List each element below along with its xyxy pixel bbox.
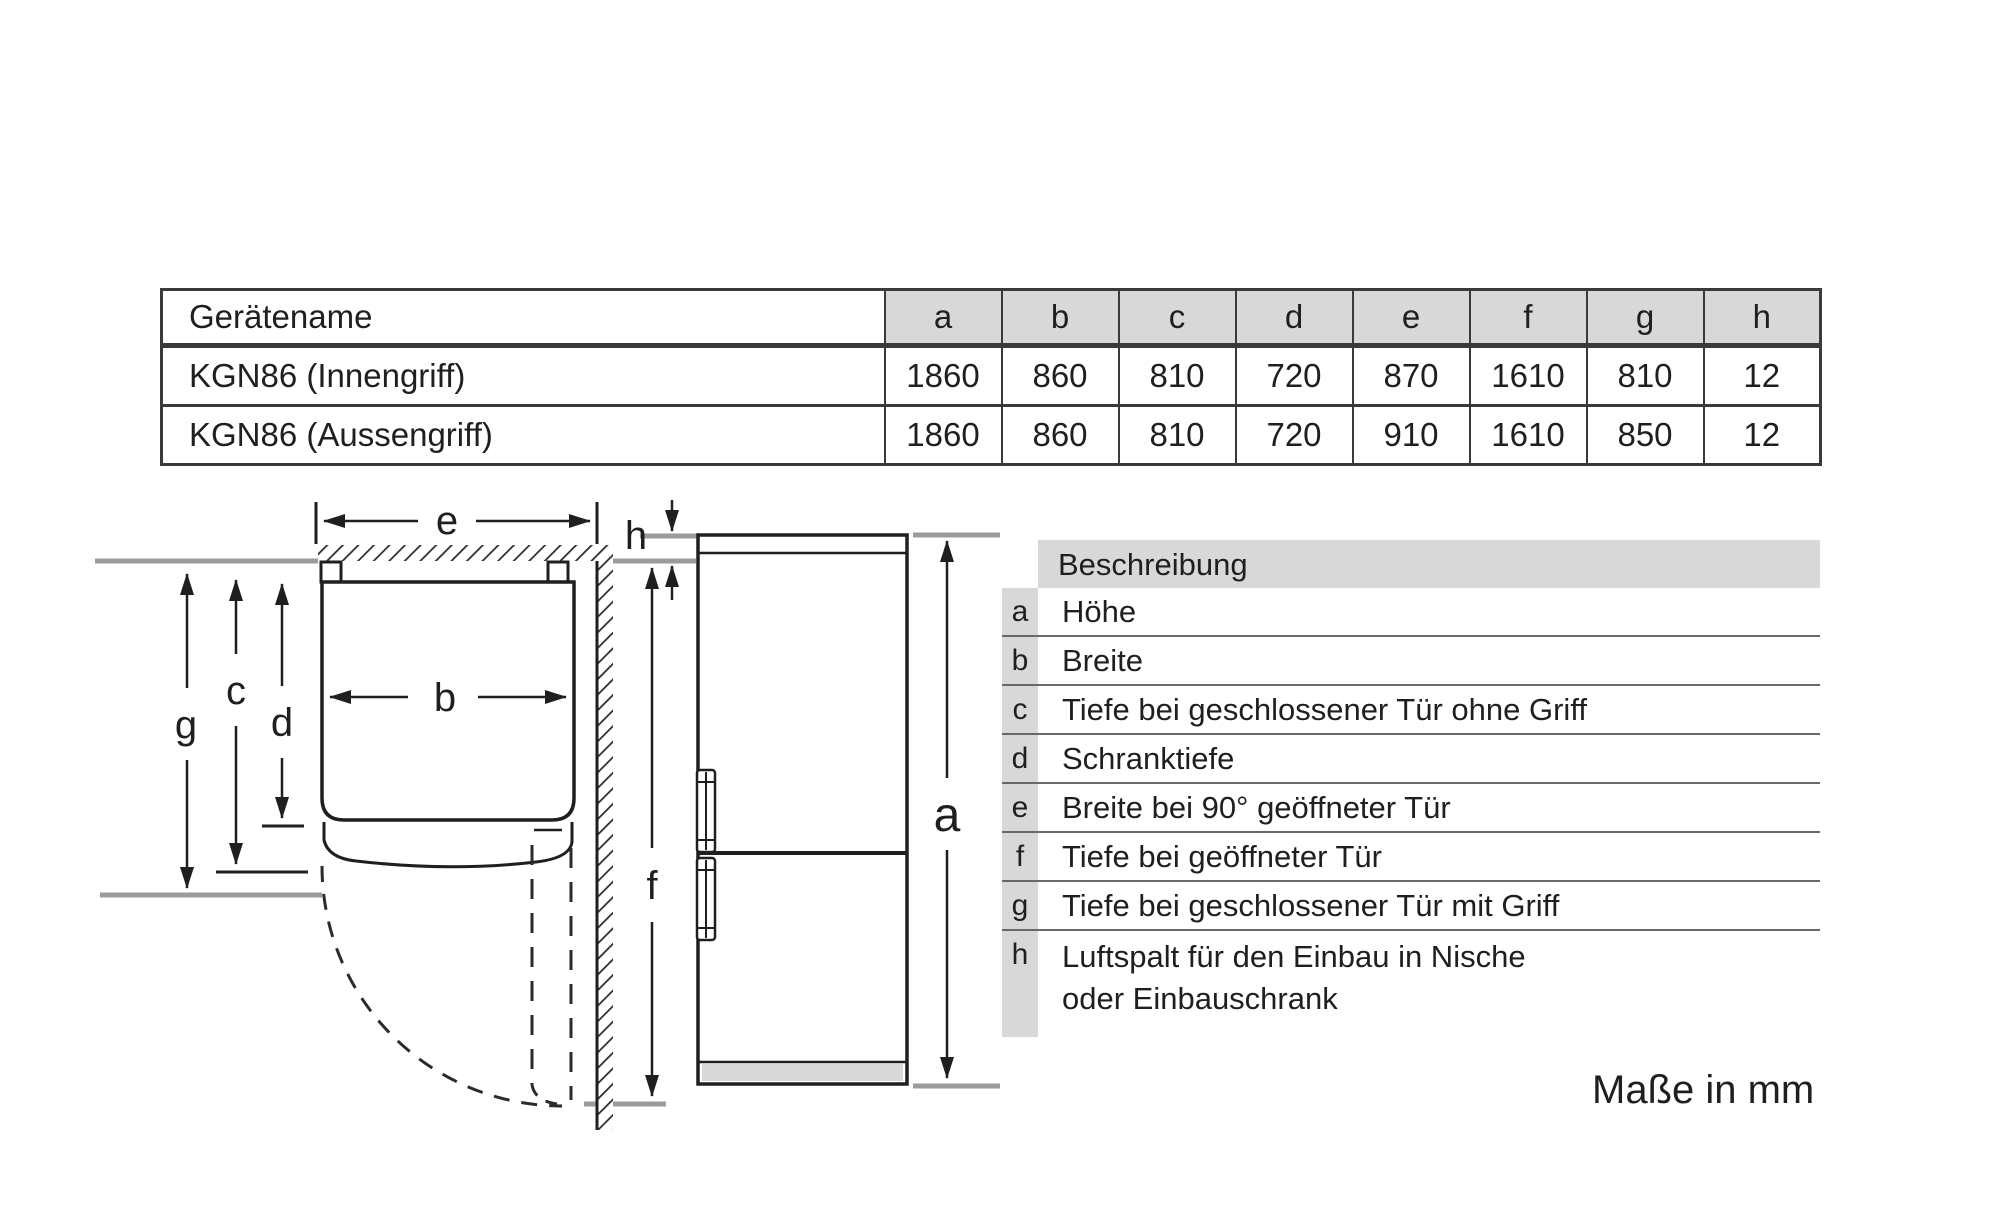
legend-text: Breite bei 90° geöffneter Tür [1038,784,1451,831]
door-closed-front [324,822,572,867]
wall-spacer-right [548,562,568,582]
legend-text-line2: oder Einbauschrank [1062,978,1526,1020]
legend-text: Tiefe bei geöffneter Tür [1038,833,1382,880]
wall-spacer-left [321,562,341,582]
legend-text: Höhe [1038,588,1136,635]
legend-key: f [1002,833,1038,880]
dim-label-a: a [934,789,961,842]
legend-key: g [1002,882,1038,929]
door-swing-arc [322,845,571,1106]
dim-label-d: d [271,701,293,745]
legend-key: c [1002,686,1038,733]
legend-text: Tiefe bei geschlossener Tür ohne Griff [1038,686,1587,733]
legend-text: Schranktiefe [1038,735,1234,782]
legend-text: Tiefe bei geschlossener Tür mit Griff [1038,882,1559,929]
legend-row-a: a Höhe [1002,588,1820,637]
legend-row-b: b Breite [1002,637,1820,686]
legend-text-line1: Luftspalt für den Einbau in Nische [1062,936,1526,978]
legend-text: Luftspalt für den Einbau in Nische oder … [1038,931,1526,1037]
legend-table: Beschreibung a Höhe b Breite c Tiefe bei… [1002,540,1820,1037]
legend-row-g: g Tiefe bei geschlossener Tür mit Griff [1002,882,1820,931]
legend-key: e [1002,784,1038,831]
legend-key: h [1002,931,1038,1037]
plinth [702,1064,903,1081]
spec-sheet: Gerätename a b c d e f g h KGN86 (Inneng… [0,0,2000,1222]
legend-key: b [1002,637,1038,684]
dim-label-f: f [646,864,658,908]
legend-row-c: c Tiefe bei geschlossener Tür ohne Griff [1002,686,1820,735]
legend-row-d: d Schranktiefe [1002,735,1820,784]
dim-label-e: e [436,499,458,543]
upper-door-handle [697,770,715,852]
units-note: Maße in mm [1592,1068,1814,1113]
legend-header: Beschreibung [1038,540,1820,588]
dim-label-b: b [434,676,456,720]
legend-row-h: h Luftspalt für den Einbau in Nische ode… [1002,931,1820,1037]
dim-label-c: c [226,669,246,713]
dim-label-h: h [625,514,647,558]
legend-key: a [1002,588,1038,635]
legend-key: d [1002,735,1038,782]
legend-row-e: e Breite bei 90° geöffneter Tür [1002,784,1820,833]
dim-label-g: g [175,703,197,747]
legend-row-f: f Tiefe bei geöffneter Tür [1002,833,1820,882]
front-view-fridge [697,535,907,1084]
legend-text: Breite [1038,637,1143,684]
lower-door-handle [697,858,715,940]
